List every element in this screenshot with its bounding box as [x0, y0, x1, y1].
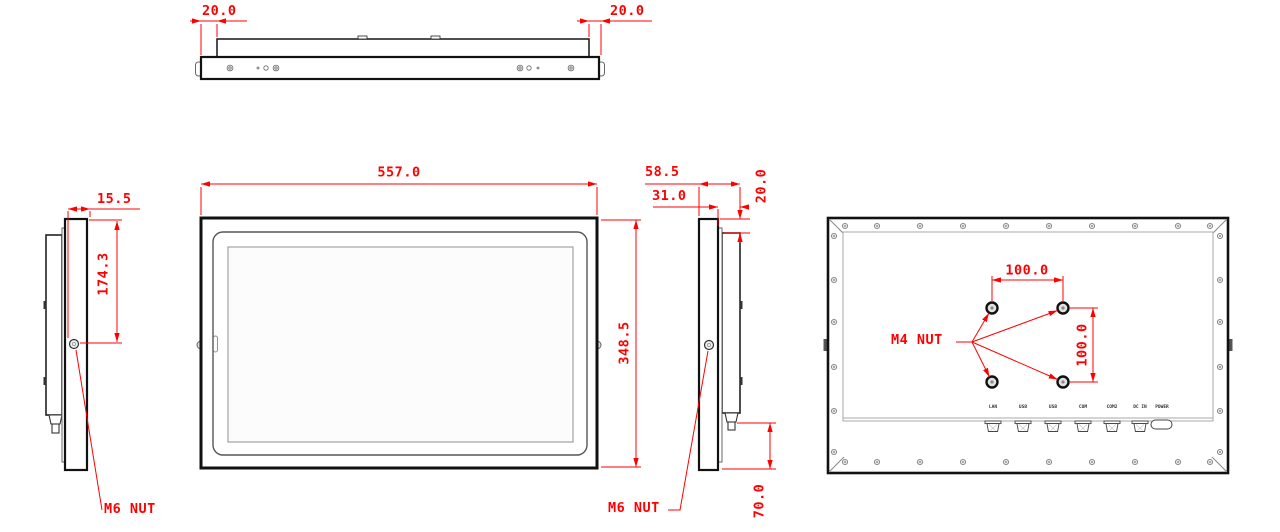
- left-side-view: [44, 209, 141, 510]
- display-screen: [228, 247, 573, 442]
- m6-nut-icon: [705, 341, 714, 350]
- top-handle-tab: [358, 36, 367, 39]
- port-label-com: COM: [1068, 406, 1098, 411]
- dim-left-front-depth: 15.5: [97, 193, 132, 207]
- bezel-slot: [214, 336, 218, 352]
- port-label-lan: LAN: [978, 406, 1008, 411]
- dim-right-total-depth: 58.5: [645, 166, 680, 180]
- rear-inner-panel: [843, 232, 1213, 421]
- power-button: [1151, 420, 1172, 429]
- label-m6-nut-left: M6 NUT: [104, 503, 156, 517]
- dim-right-top-inset: 20.0: [755, 169, 769, 204]
- top-view: [190, 21, 652, 79]
- port-label-usb2: USB: [1038, 406, 1068, 411]
- drawing-linework: [0, 0, 1280, 532]
- rear-view: [824, 218, 1233, 473]
- dc-connector: [725, 413, 738, 422]
- port-label-com2: COM2: [1097, 406, 1127, 411]
- top-handle-tab: [431, 36, 440, 39]
- dim-left-nut-position: 174.3: [97, 252, 111, 295]
- dimension-drawing: 20.0 20.0 15.5 174.3 M6 NUT 557.0 348.5 …: [0, 0, 1280, 532]
- dim-right-rear-depth: 31.0: [652, 190, 687, 204]
- dim-vesa-vertical: 100.0: [1076, 323, 1090, 366]
- dim-right-bottom-offset: 70.0: [753, 484, 767, 519]
- port-label-usb1: USB: [1008, 406, 1038, 411]
- dim-top-right-inset: 20.0: [610, 5, 645, 19]
- label-m6-nut-right: M6 NUT: [608, 502, 660, 516]
- label-m4-nut: M4 NUT: [891, 334, 943, 348]
- port-label-power: POWER: [1147, 406, 1177, 411]
- right-side-view: [645, 184, 776, 510]
- dim-top-left-inset: 20.0: [202, 5, 237, 19]
- dc-connector: [49, 415, 62, 424]
- m6-nut-icon: [70, 340, 79, 349]
- dim-front-height: 348.5: [618, 321, 632, 364]
- dim-vesa-horizontal: 100.0: [1005, 264, 1048, 278]
- dim-front-width: 557.0: [377, 166, 420, 180]
- front-view: [197, 184, 641, 468]
